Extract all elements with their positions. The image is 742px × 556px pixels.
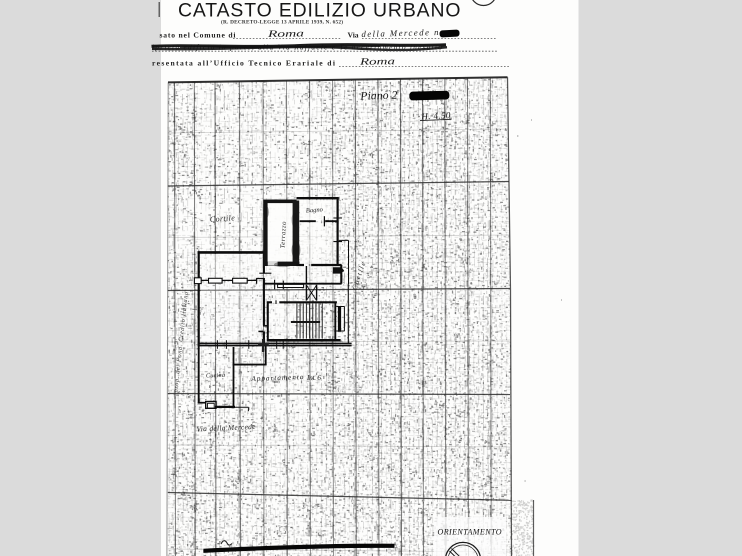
svg-text:Roma: Roma [266, 28, 304, 40]
svg-text:°: ° [397, 89, 400, 97]
svg-text:Piano 2: Piano 2 [359, 90, 398, 103]
svg-text:sato nel Comune di: sato nel Comune di [160, 30, 236, 39]
svg-text:(R. DECRETO-LEGGE 13 APRILE 19: (R. DECRETO-LEGGE 13 APRILE 1939, N. 652… [221, 19, 343, 26]
svg-text:della Mercede n: della Mercede n [361, 27, 439, 39]
svg-text:ORIENTAMENTO: ORIENTAMENTO [438, 528, 502, 537]
svg-text:Bagno: Bagno [306, 206, 323, 214]
svg-text:Cucina: Cucina [206, 372, 225, 380]
svg-text:Int. 6: Int. 6 [306, 374, 321, 382]
svg-text:Cortile: Cortile [210, 213, 236, 224]
svg-text:CATASTO EDILIZIO URBANO: CATASTO EDILIZIO URBANO [178, 0, 462, 21]
svg-text:Via: Via [348, 30, 359, 39]
svg-text:resentata all’Ufficio Tecnico: resentata all’Ufficio Tecnico Erariale d… [152, 58, 335, 67]
svg-text:Terrazzo: Terrazzo [280, 221, 288, 249]
